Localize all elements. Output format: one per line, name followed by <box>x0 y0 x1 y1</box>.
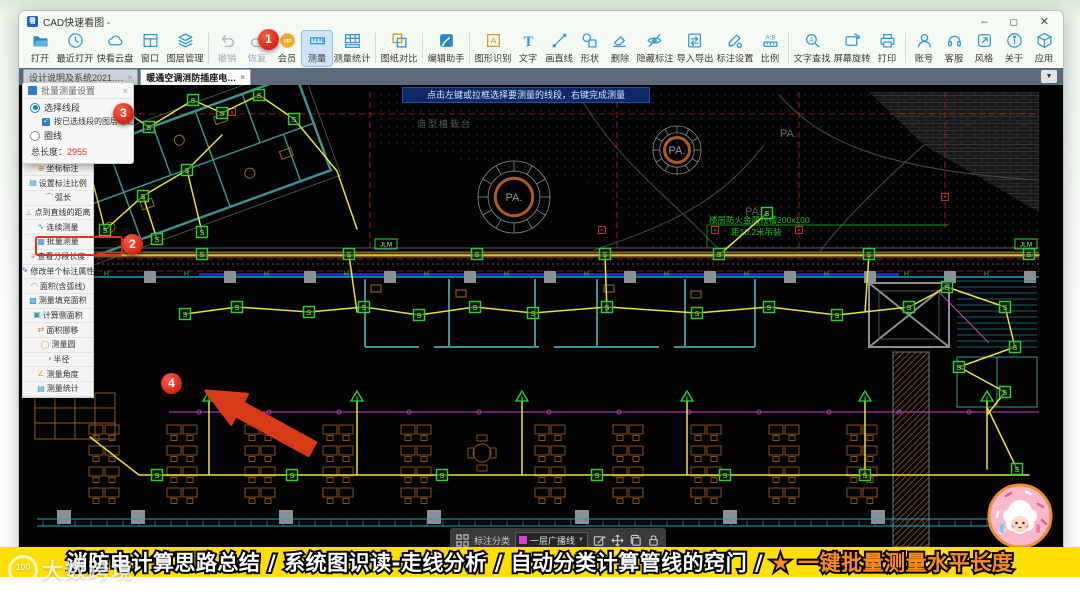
move-icon[interactable] <box>611 534 624 547</box>
svg-text:S: S <box>723 473 728 480</box>
measure-stats-icon <box>344 32 361 49</box>
svg-text:S: S <box>440 473 445 480</box>
sidebar-item-measure-circle[interactable]: ◯测量圆 <box>23 338 93 353</box>
toolbar-button-label: 比例 <box>761 51 779 65</box>
toolbar-collapse-icon[interactable]: ▼ <box>1041 70 1057 83</box>
svg-text:S: S <box>220 111 225 118</box>
radio-selected-icon[interactable] <box>30 103 40 113</box>
point-line-distance-icon: ⊥ <box>26 209 33 217</box>
toolbar-button-screen-rotate[interactable]: 屏幕旋转 <box>832 31 872 66</box>
toolbar-divider <box>208 33 209 63</box>
mascot-avatar <box>986 482 1054 550</box>
svg-text:S: S <box>595 473 600 480</box>
toolbar-button-text-search[interactable]: A文字查找 <box>792 31 832 66</box>
svg-text:H: H <box>504 271 509 278</box>
toolbar-button-cloud[interactable]: 快看云盘 <box>95 31 135 66</box>
close-button[interactable]: ✕ <box>1040 16 1049 28</box>
svg-text:S: S <box>767 305 772 312</box>
svg-text:S: S <box>155 237 160 244</box>
svg-text:S: S <box>362 305 367 312</box>
side-area-icon: ▣ <box>33 311 41 319</box>
sidebar-item-fill-area[interactable]: ▩测量填充面积 <box>23 294 93 309</box>
layer-select-dropdown[interactable]: 一层广播线 ▼ <box>515 532 588 549</box>
support-icon <box>946 32 963 49</box>
sidebar-item-label: 测量填充面积 <box>39 295 87 306</box>
svg-text:A: A <box>809 37 814 44</box>
chevron-down-icon: ▼ <box>578 537 584 543</box>
annotation-settings-icon <box>726 32 743 49</box>
highlight-box-batch-measure <box>35 236 123 256</box>
toolbar-button-label: 最近打开 <box>57 51 94 65</box>
tab-bar: 设计说明及系统2021.…× 暖通空调消防插座电…× ▼ <box>19 68 1063 85</box>
toolbar-button-support[interactable]: 客服 <box>939 31 969 66</box>
toolbar-button-label: 恢复 <box>248 51 266 65</box>
sidebar-item-continuous-measure[interactable]: ∿连续测量 <box>23 220 93 235</box>
toolbar-button-window[interactable]: 窗口 <box>135 31 165 66</box>
svg-text:S: S <box>185 168 190 175</box>
lock-icon[interactable] <box>647 534 660 547</box>
maximize-button[interactable]: ▢ <box>1009 16 1018 28</box>
scale-icon: A:B <box>762 32 779 49</box>
svg-text:H: H <box>104 271 109 278</box>
measure-stats-icon: ▤ <box>37 385 45 393</box>
svg-text:S: S <box>1003 305 1008 312</box>
step-badge-2: 2 <box>122 234 143 255</box>
shapes-icon <box>581 32 598 49</box>
measure-icon <box>309 32 326 49</box>
toolbar-button-label: 快看云盘 <box>97 51 134 65</box>
radio-unselected-icon[interactable] <box>30 131 40 141</box>
layer-select-value: 一层广播线 <box>530 534 575 547</box>
copy-icon[interactable] <box>629 534 642 547</box>
style-icon <box>976 32 993 49</box>
svg-text:S: S <box>200 252 205 259</box>
import-export-icon <box>686 32 703 49</box>
svg-text:H: H <box>664 271 669 278</box>
svg-text:造型植栽台: 造型植栽台 <box>417 118 472 129</box>
sidebar-item-label: 面积(含弧线) <box>40 281 85 292</box>
toolbar-button-label: 形状 <box>581 51 599 65</box>
toolbar-button-layers[interactable]: 图层管理 <box>165 31 205 66</box>
continuous-measure-icon: ∿ <box>38 223 45 231</box>
svg-text:S: S <box>417 313 422 320</box>
svg-text:S: S <box>867 252 872 259</box>
step-badge-4: 4 <box>161 373 182 394</box>
toolbar-button-text[interactable]: T文字 <box>513 31 543 66</box>
shape-recognition-icon: A <box>485 32 502 49</box>
sidebar-item-measure-stats[interactable]: ▤测量统计 <box>23 382 93 397</box>
sidebar-item-label: 面积挪移 <box>46 325 78 336</box>
svg-text:S: S <box>1027 252 1032 259</box>
toolbar-button-label: 客服 <box>945 51 963 65</box>
svg-text:S: S <box>475 252 480 259</box>
toolbar-button-open[interactable]: 打开 <box>25 31 55 66</box>
sidebar-item-label: 测量统计 <box>47 383 79 394</box>
toolbar-button-label: 会员 <box>278 51 296 65</box>
sidebar-item-label: 连续测量 <box>46 222 78 233</box>
title-bar: 看 CAD快速看图 - – ▢ ✕ <box>19 11 1063 30</box>
cloud-icon <box>107 32 124 49</box>
svg-text:VIP: VIP <box>283 39 292 45</box>
svg-text:S: S <box>103 228 108 235</box>
checkbox-checked-icon[interactable]: ✓ <box>42 118 50 126</box>
svg-text:JLM: JLM <box>1020 242 1032 249</box>
sidebar-item-label: 修改单个标注属性 <box>30 266 94 277</box>
print-icon <box>879 32 896 49</box>
svg-text:S: S <box>191 98 196 105</box>
svg-text:S: S <box>141 194 146 201</box>
svg-text:S: S <box>957 365 962 372</box>
about-icon <box>1006 32 1023 49</box>
svg-text:S: S <box>200 230 205 237</box>
svg-text:S: S <box>907 305 912 312</box>
caption-banner: 消防电计算思路总结 / 系统图识读-走线分析 / 自动分类计算管线的窍门 / ★… <box>0 547 1080 577</box>
radio-circle-select[interactable]: 圈线 <box>23 127 133 142</box>
toolbar-button-apps[interactable]: 应用 <box>1029 31 1059 66</box>
tab-close-icon[interactable]: × <box>128 73 133 82</box>
popup-close-icon[interactable]: × <box>123 86 128 96</box>
toolbar-button-label: 删除 <box>611 51 629 65</box>
svg-text:PA.: PA. <box>780 128 797 140</box>
toolbar-button-print[interactable]: 打印 <box>872 31 902 66</box>
hide-annotations-icon <box>646 32 663 49</box>
toolbar-button-label: 撤销 <box>218 51 236 65</box>
sidebar-item-label: 计算侧面积 <box>43 310 83 321</box>
toolbar-button-compare[interactable]: 图纸对比 <box>379 31 419 66</box>
app-window: 看 CAD快速看图 - – ▢ ✕ 打开最近打开快看云盘窗口图层管理撤销恢复VI… <box>18 10 1064 549</box>
svg-text:S: S <box>235 305 240 312</box>
svg-text:S: S <box>347 252 352 259</box>
toolbar-button-label: 图层管理 <box>167 51 204 65</box>
open-icon <box>32 32 49 49</box>
compare-icon <box>391 32 408 49</box>
total-length-value: 2955 <box>67 147 87 157</box>
svg-text:S: S <box>695 311 700 318</box>
toolbar-button-label: 文字 <box>519 51 537 65</box>
sidebar-item-modify-annotation[interactable]: ✎修改单个标注属性 <box>23 265 93 280</box>
svg-text:S: S <box>257 93 262 100</box>
svg-text:距10.2米吊装: 距10.2米吊装 <box>731 227 782 237</box>
sidebar-item-radius[interactable]: ◑半径 <box>23 353 93 368</box>
total-length-row: 总长度：2955 <box>23 142 133 163</box>
svg-text:H: H <box>984 271 989 278</box>
sidebar-item-label: 测量角度 <box>47 369 79 380</box>
sidebar-item-point-line-distance[interactable]: ⊥点到直线的距离 <box>23 206 93 221</box>
coordinate-icon: ⊕ <box>38 165 45 173</box>
toolbar-button-shapes[interactable]: 形状 <box>575 31 605 66</box>
modify-annotation-icon: ✎ <box>22 267 29 275</box>
toolbar-button-measure[interactable]: 测量 <box>302 31 332 66</box>
toolbar-button-hide-annotations[interactable]: 隐藏标注 <box>635 31 675 66</box>
svg-text:S: S <box>183 312 188 319</box>
area-move-icon: ⇄ <box>38 326 45 334</box>
svg-text:A: A <box>490 36 496 46</box>
recent-icon <box>67 32 84 49</box>
toolbar-divider <box>469 33 470 63</box>
popup-icon <box>28 86 37 95</box>
toolbar-button-label: 隐藏标注 <box>636 51 673 65</box>
svg-text:S: S <box>603 252 608 259</box>
toolbar-button-label: 图形识别 <box>475 51 512 65</box>
layer-color-swatch <box>519 536 527 544</box>
toolbar-button-label: 窗口 <box>141 51 159 65</box>
grid-view-icon[interactable] <box>456 534 469 547</box>
caption-banner-text: 消防电计算思路总结 / 系统图识读-走线分析 / 自动分类计算管线的窍门 / ★… <box>0 547 1080 577</box>
minimize-button[interactable]: – <box>981 16 987 28</box>
svg-text:PA.: PA. <box>506 192 523 204</box>
main-toolbar: 打开最近打开快看云盘窗口图层管理撤销恢复VIP会员测量测量统计图纸对比编辑助手A… <box>19 30 1063 68</box>
sidebar-item-area-with-arc[interactable]: ◠面积(含弧线) <box>23 279 93 294</box>
sidebar-item-measure-angle[interactable]: ∠测量角度 <box>23 367 93 382</box>
sidebar-item-label: 设置标注比例 <box>39 178 87 189</box>
toolbar-button-style[interactable]: 风格 <box>969 31 999 66</box>
svg-text:H: H <box>904 271 909 278</box>
undo-icon <box>219 32 236 49</box>
toolbar-button-annotation-settings[interactable]: 标注设置 <box>715 31 755 66</box>
toolbar-button-label: 打印 <box>878 51 896 65</box>
toolbar-button-label: 打开 <box>31 51 49 65</box>
sidebar-item-label: 半径 <box>53 354 69 365</box>
svg-text:S: S <box>1003 390 1008 397</box>
svg-text:H: H <box>344 271 349 278</box>
svg-text:JLM: JLM <box>380 242 392 249</box>
svg-text:S: S <box>292 117 297 124</box>
radius-icon: ◑ <box>47 355 52 363</box>
layers-icon <box>177 32 194 49</box>
sidebar-item-area-move[interactable]: ⇄面积挪移 <box>23 323 93 338</box>
svg-text:S: S <box>290 473 295 480</box>
toolbar-button-label: 画直线 <box>545 51 573 65</box>
screenshot-stage: 看 CAD快速看图 - – ▢ ✕ 打开最近打开快看云盘窗口图层管理撤销恢复VI… <box>0 0 1080 599</box>
apps-icon <box>1036 32 1053 49</box>
toolbar-button-label: 账号 <box>915 51 933 65</box>
toolbar-button-label: 屏幕旋转 <box>834 51 871 65</box>
svg-text:H: H <box>744 271 749 278</box>
toolbar-button-label: 导入导出 <box>677 51 714 65</box>
toolbar-button-label: 图纸对比 <box>381 51 418 65</box>
toolbar-button-label: 风格 <box>975 51 993 65</box>
toolbar-button-label: 编辑助手 <box>428 51 465 65</box>
svg-text:H: H <box>424 271 429 278</box>
draw-line-icon <box>551 32 568 49</box>
text-icon: T <box>520 32 537 49</box>
toolbar-button-label: 应用 <box>1035 51 1053 65</box>
toolbar-button-import-export[interactable]: 导入导出 <box>675 31 715 66</box>
svg-text:S: S <box>147 125 152 132</box>
toolbar-button-label: 标注设置 <box>717 51 754 65</box>
svg-text:H: H <box>824 271 829 278</box>
window-icon <box>142 32 159 49</box>
fill-area-icon: ▩ <box>29 297 37 305</box>
measure-circle-icon: ◯ <box>41 341 50 349</box>
arc-length-icon: ⌒ <box>45 194 53 202</box>
svg-text:H: H <box>584 271 589 278</box>
sidebar-item-side-area[interactable]: ▣计算侧面积 <box>23 309 93 324</box>
toolbar-divider <box>788 33 789 63</box>
toolbar-button-measure-stats[interactable]: 测量统计 <box>332 31 372 66</box>
eraser-icon <box>611 32 628 49</box>
toolbar-button-label: 测量 <box>308 51 326 65</box>
measure-angle-icon: ∠ <box>37 370 44 378</box>
red-arrow <box>198 383 323 463</box>
svg-text:S: S <box>155 473 160 480</box>
area-with-arc-icon: ◠ <box>31 282 38 290</box>
vip-icon: VIP <box>279 32 296 49</box>
toolbar-divider <box>422 33 423 63</box>
sidebar-item-label: 测量圆 <box>51 339 75 350</box>
svg-text:S: S <box>765 211 770 218</box>
toolbar-button-account[interactable]: 账号 <box>909 31 939 66</box>
cad-floorplan: PA. PA.PA.PA.造型植栽台 楼层防火金属线槽200x100距10.2米… <box>19 85 1061 548</box>
svg-text:S: S <box>717 252 722 259</box>
svg-text:S: S <box>835 313 840 320</box>
account-icon <box>916 32 933 49</box>
tab-hvac-fire-plan[interactable]: 暖通空调消防插座电…× <box>140 69 251 85</box>
svg-text:S: S <box>531 311 536 318</box>
canvas-hint-tooltip: 点击左键或拉框选择要测量的线段，右键完成测量 <box>402 87 650 103</box>
svg-text:T: T <box>523 34 533 49</box>
svg-text:H: H <box>184 271 189 278</box>
svg-text:S: S <box>307 310 312 317</box>
annotation-scale-icon: ▤ <box>29 179 37 187</box>
sidebar-item-arc-length[interactable]: ⌒弧长 <box>23 191 93 206</box>
svg-text:S: S <box>863 473 868 480</box>
annotation-toolbar: 标注分类 一层广播线 ▼ <box>450 528 666 548</box>
toolbar-divider <box>375 33 376 63</box>
svg-text:H: H <box>264 271 269 278</box>
toolbar-button-scale[interactable]: A:B比例 <box>755 31 785 66</box>
svg-text:S: S <box>1015 467 1020 474</box>
popup-title: 批量测量设置 <box>41 84 95 97</box>
sidebar-item-label: 点到直线的距离 <box>34 207 90 218</box>
app-icon: 看 <box>27 16 38 27</box>
svg-text:A:B: A:B <box>765 34 775 41</box>
toolbar-button-shape-recognition[interactable]: A图形识别 <box>473 31 513 66</box>
sidebar-item-label: 坐标标注 <box>46 163 78 174</box>
annotation-category-label: 标注分类 <box>474 534 510 547</box>
toolbar-divider <box>905 33 906 63</box>
screen-rotate-icon <box>844 32 861 49</box>
toolbar-button-about[interactable]: 关于 <box>999 31 1029 66</box>
toolbar-button-label: 文字查找 <box>794 51 831 65</box>
window-title: CAD快速看图 - <box>43 14 110 29</box>
svg-text:S: S <box>945 285 950 292</box>
toolbar-button-recent[interactable]: 最近打开 <box>55 31 95 66</box>
measure-tools-panel: ▭矩形面积⊕坐标标注▤设置标注比例⌒弧长⊥点到直线的距离∿连续测量▦批量测量≡查… <box>22 146 94 398</box>
sidebar-item-annotation-scale[interactable]: ▤设置标注比例 <box>23 176 93 191</box>
step-badge-1: 1 <box>258 29 279 50</box>
toolbar-button-draw-line[interactable]: 画直线 <box>543 31 575 66</box>
step-badge-3: 3 <box>113 103 134 124</box>
toolbar-button-undo[interactable]: 撤销 <box>212 31 242 66</box>
tab-close-icon[interactable]: × <box>240 73 245 82</box>
svg-text:PA.: PA. <box>669 145 686 157</box>
toolbar-button-label: 测量统计 <box>334 51 371 65</box>
edit-assistant-icon <box>438 32 455 49</box>
edit-annotation-icon[interactable] <box>593 534 606 547</box>
toolbar-button-label: 关于 <box>1005 51 1023 65</box>
toolbar-button-eraser[interactable]: 删除 <box>605 31 635 66</box>
svg-text:S: S <box>605 305 610 312</box>
drawing-canvas[interactable]: PA. PA.PA.PA.造型植栽台 楼层防火金属线槽200x100距10.2米… <box>19 85 1063 548</box>
batch-measure-settings-popup: 批量测量设置 × 选择线段 ✓ 按已选线段的图层过滤 圈线 总长度：2955 <box>22 82 134 164</box>
text-search-icon: A <box>804 32 821 49</box>
svg-text:S: S <box>1013 345 1018 352</box>
svg-text:消防电计算思路总结 / 系统图识读-走线分析 / 自动分类计: 消防电计算思路总结 / 系统图识读-走线分析 / 自动分类计算管线的窍门 / ★… <box>67 551 1013 575</box>
svg-text:S: S <box>473 305 478 312</box>
toolbar-button-edit-assistant[interactable]: 编辑助手 <box>426 31 466 66</box>
sidebar-item-label: 弧长 <box>55 192 71 203</box>
